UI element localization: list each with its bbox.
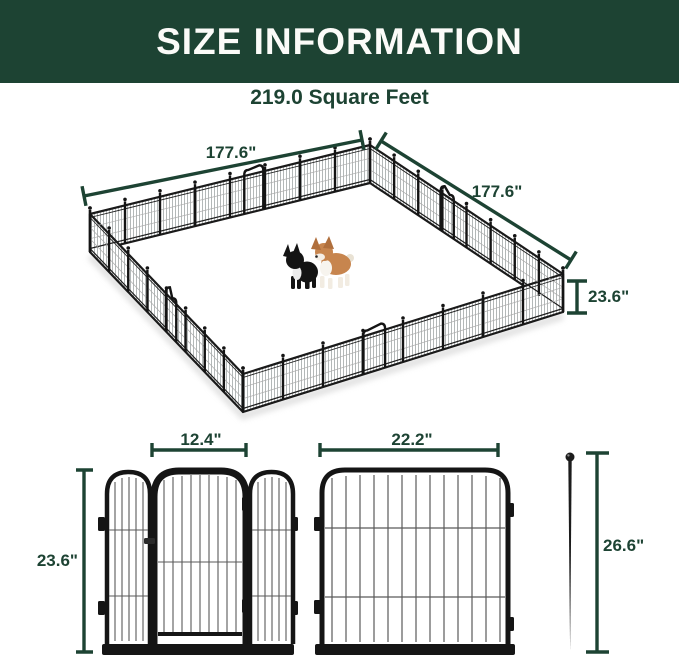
single-panel-illustration: 22.2": [314, 430, 515, 655]
dim-door-width: 12.4": [152, 430, 246, 457]
dim-pen-height-label: 23.6": [588, 287, 629, 306]
dim-door-width-label: 12.4": [180, 430, 221, 449]
door-panel-base-bar: [102, 644, 294, 655]
dim-back-right-label: 177.6": [472, 182, 523, 201]
dim-pen-height: 23.6": [567, 281, 629, 313]
door-latch: [144, 538, 155, 544]
stake-ball-highlight: [567, 454, 569, 456]
stake-ball-head: [566, 453, 575, 462]
ground-stake-illustration: 26.6": [566, 453, 645, 653]
dim-stake-height: 26.6": [586, 453, 644, 652]
dim-stake-height-label: 26.6": [603, 536, 644, 555]
pen-illustration: 177.6" 177.6" 23.6": [82, 130, 629, 416]
dim-door-panel-height-label: 23.6": [37, 551, 78, 570]
door-side-panel-left: [107, 472, 150, 644]
stake-shaft: [568, 461, 571, 651]
illustration-scene: 177.6" 177.6" 23.6": [0, 0, 679, 656]
dim-panel-width-label: 22.2": [391, 430, 432, 449]
dim-door-panel-height: 23.6": [37, 470, 93, 652]
dim-panel-width: 22.2": [320, 430, 498, 457]
door-panel-door: [144, 471, 251, 644]
door-panel-illustration: 12.4" 23.6": [37, 430, 298, 655]
dim-back-left-label: 177.6": [206, 143, 257, 162]
panel-frame: [322, 470, 508, 644]
door-side-panel-right: [250, 472, 293, 644]
size-information-infographic: SIZE INFORMATION 219.0 Square Feet: [0, 0, 679, 656]
panel-base-bar: [315, 644, 515, 655]
